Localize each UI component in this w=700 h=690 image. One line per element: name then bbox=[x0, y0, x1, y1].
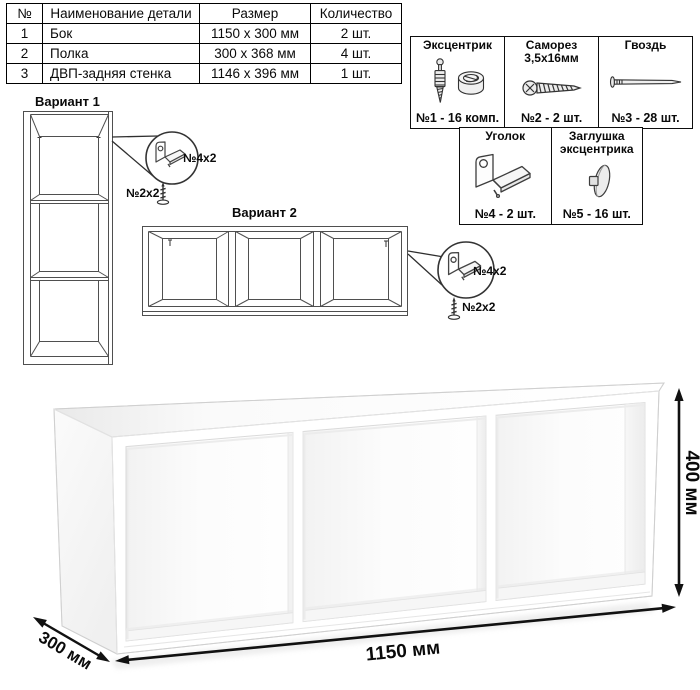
dimension-height-label: 400 мм bbox=[680, 447, 700, 519]
variant1-bracket-label: №4х2 bbox=[183, 151, 216, 165]
compartment-1 bbox=[126, 432, 293, 641]
variant1-screw-label: №2х2 bbox=[126, 186, 159, 200]
unit-left-face bbox=[54, 409, 117, 654]
screw-detail-icon bbox=[448, 297, 459, 319]
compartment-2 bbox=[303, 416, 486, 622]
assembled-unit-3d bbox=[0, 372, 700, 690]
variant2-bracket-label: №4х2 bbox=[473, 264, 506, 278]
assembly-instruction-sheet: № Наименование детали Размер Количество … bbox=[0, 0, 700, 690]
variant2-screw-label: №2х2 bbox=[462, 300, 495, 314]
compartment-3 bbox=[496, 403, 645, 601]
